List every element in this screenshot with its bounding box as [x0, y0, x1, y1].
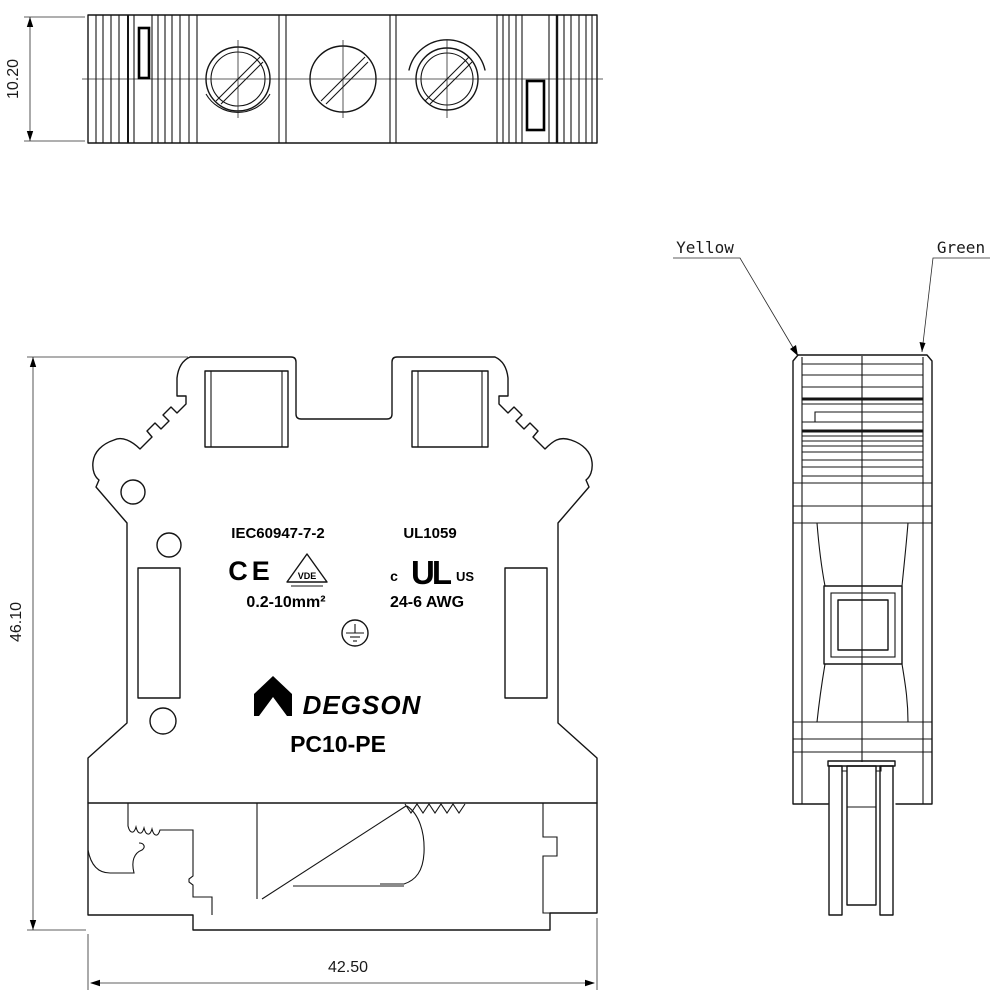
sheet-background: [0, 0, 1000, 1000]
standard-iec-label: IEC60947-7-2: [231, 525, 324, 542]
dim-label-front-height: 46.10: [8, 602, 25, 642]
vde-mark-label: VDE: [298, 571, 317, 581]
callout-yellow-label: Yellow: [676, 238, 734, 257]
dim-label-top-height: 10.20: [5, 59, 22, 99]
cul-monogram: UL: [411, 554, 452, 591]
brand-label: DEGSON: [303, 690, 422, 720]
wire-range-awg-label: 24-6 AWG: [390, 594, 464, 611]
cul-suffix: US: [456, 569, 474, 584]
cul-prefix: c: [390, 568, 398, 584]
standard-ul-label: UL1059: [403, 525, 456, 542]
wire-range-mm-label: 0.2-10mm²: [246, 594, 325, 611]
callout-green-label: Green: [937, 238, 985, 257]
drawing-sheet: 10.20: [0, 0, 1000, 1000]
model-label: PC10-PE: [290, 731, 386, 757]
dim-label-front-width: 42.50: [328, 959, 368, 976]
ce-mark-icon: CE: [228, 556, 274, 586]
terminal-block-drawing: 10.20: [0, 0, 1000, 1000]
